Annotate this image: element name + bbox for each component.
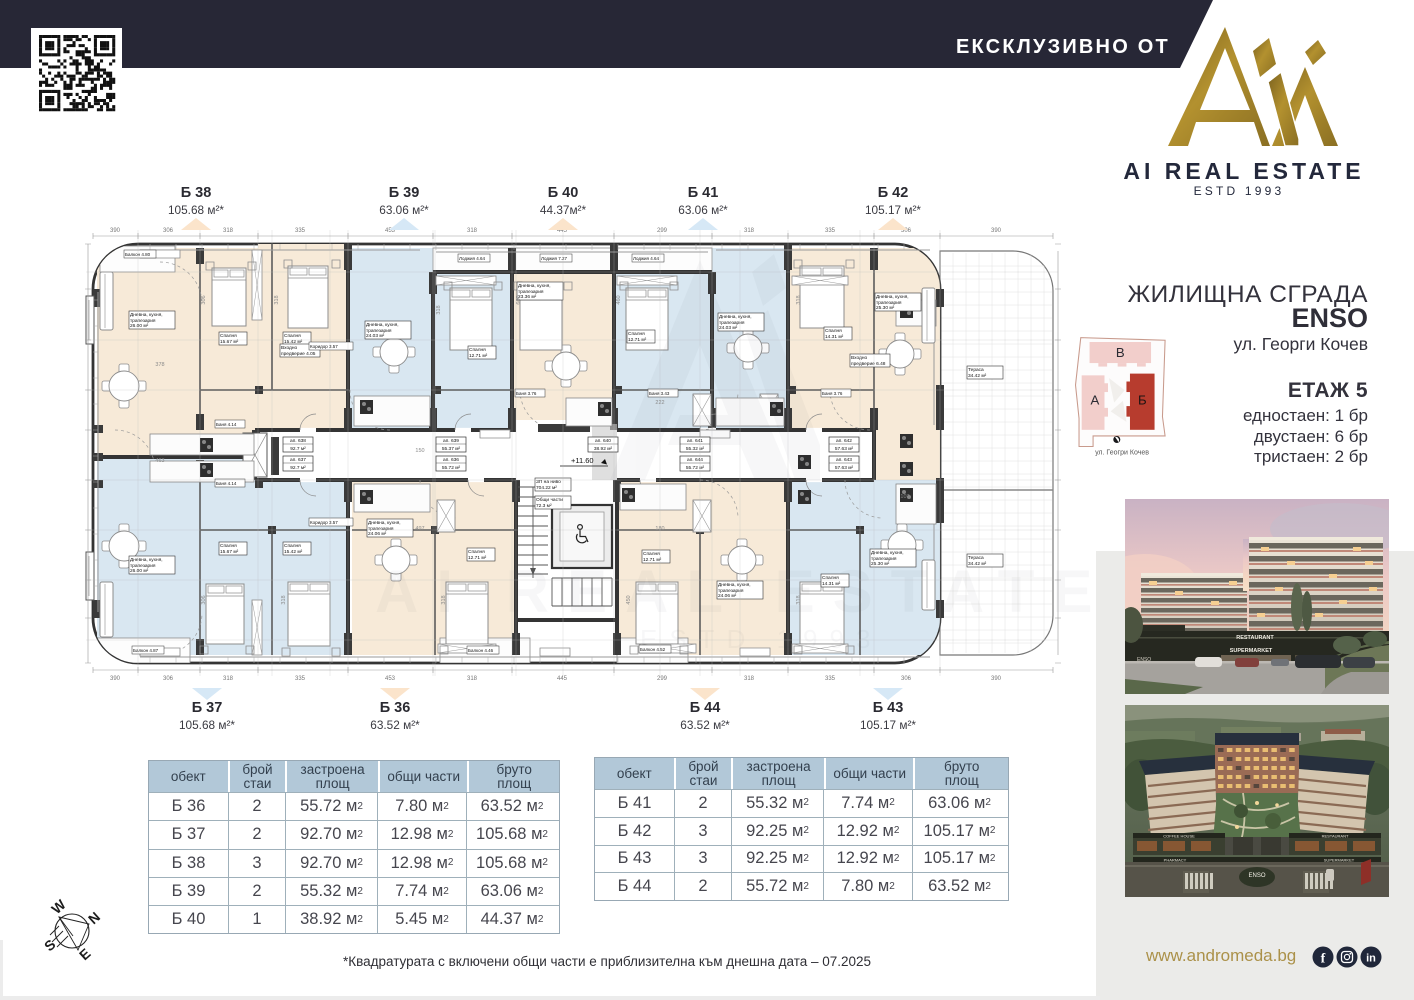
svg-text:Дневна, кухня,: Дневна, кухня, (718, 582, 751, 588)
svg-text:463: 463 (155, 458, 164, 464)
svg-text:S: S (41, 936, 59, 954)
svg-text:Дневна, кухня,: Дневна, кухня, (130, 557, 163, 563)
svg-text:Баня 3.76: Баня 3.76 (516, 391, 537, 396)
svg-text:318: 318 (796, 595, 802, 604)
svg-text:Б 39: Б 39 (389, 185, 420, 201)
svg-text:Коридор 3.57: Коридор 3.57 (310, 520, 338, 525)
svg-text:ап. 642: ап. 642 (836, 438, 852, 444)
svg-text:57.63 м²: 57.63 м² (835, 465, 854, 471)
svg-text:318: 318 (744, 676, 755, 682)
svg-text:55.72 м²: 55.72 м² (442, 465, 461, 471)
svg-text:Баня 3.76: Баня 3.76 (822, 391, 843, 396)
svg-text:RESTAURANT: RESTAURANT (1322, 834, 1349, 839)
svg-text:Балкон 4.87: Балкон 4.87 (133, 648, 159, 653)
svg-text:Спалня: Спалня (825, 328, 842, 334)
svg-text:390: 390 (110, 228, 121, 234)
svg-text:600: 600 (516, 295, 522, 304)
svg-text:25.30 м²: 25.30 м² (876, 305, 895, 311)
svg-text:378: 378 (155, 362, 164, 368)
svg-text:Спалня: Спалня (220, 333, 237, 339)
svg-text:Баня 4.14: Баня 4.14 (216, 422, 237, 427)
svg-text:453: 453 (385, 676, 396, 682)
svg-text:Б 44: Б 44 (690, 700, 721, 716)
svg-text:318: 318 (467, 228, 478, 234)
svg-text:306: 306 (201, 295, 207, 304)
svg-text:Б 41: Б 41 (688, 185, 719, 201)
svg-text:Тераса: Тераса (968, 367, 984, 373)
svg-text:Дневна, кухня,: Дневна, кухня, (876, 294, 909, 300)
svg-text:Б 42: Б 42 (878, 185, 909, 201)
svg-text:318: 318 (223, 676, 234, 682)
svg-text:335: 335 (825, 228, 836, 234)
svg-text:ап. 637: ап. 637 (290, 457, 306, 463)
svg-text:63.06 м²*: 63.06 м²* (678, 203, 728, 217)
svg-text:ап. 639: ап. 639 (443, 438, 459, 444)
svg-text:318: 318 (796, 295, 802, 304)
svg-text:*Квадратурата с включени общи: *Квадратурата с включени общи части е пр… (343, 954, 871, 969)
svg-text:390: 390 (110, 676, 121, 682)
svg-text:105.68 м²*: 105.68 м²* (179, 718, 235, 732)
svg-text:Лоджия 4.64: Лоджия 4.64 (633, 256, 659, 261)
svg-text:E: E (76, 945, 94, 963)
svg-text:Б 36: Б 36 (380, 700, 411, 716)
svg-text:Коридор 3.57: Коридор 3.57 (310, 344, 338, 349)
svg-text:Тераса: Тераса (968, 555, 984, 561)
svg-text:318: 318 (274, 295, 280, 304)
svg-text:Баня 4.14: Баня 4.14 (216, 481, 237, 486)
svg-text:299: 299 (657, 228, 668, 234)
svg-text:24.06 м²: 24.06 м² (368, 531, 387, 537)
svg-text:+11.60: +11.60 (571, 456, 594, 465)
svg-text:Дневна, кухня,: Дневна, кухня, (366, 322, 399, 328)
svg-text:306: 306 (901, 676, 912, 682)
svg-text:12.71 м²: 12.71 м² (469, 353, 488, 359)
svg-text:ап. 644: ап. 644 (687, 457, 703, 463)
svg-text:299: 299 (657, 676, 668, 682)
svg-text:W: W (48, 896, 69, 917)
svg-text:ап. 636: ап. 636 (443, 457, 459, 463)
svg-text:150: 150 (415, 448, 424, 454)
svg-text:26.00 м²: 26.00 м² (130, 323, 149, 329)
svg-text:390: 390 (991, 228, 1002, 234)
svg-text:Б 37: Б 37 (192, 700, 223, 716)
svg-text:445: 445 (557, 676, 568, 682)
svg-text:Дневна, кухня,: Дневна, кухня, (130, 312, 163, 318)
svg-text:Дневна, кухня,: Дневна, кухня, (518, 283, 551, 289)
svg-text:318: 318 (441, 595, 447, 604)
svg-text:Спалня: Спалня (284, 543, 301, 549)
svg-text:24.03 м²: 24.03 м² (719, 325, 738, 331)
svg-text:105.17 м²*: 105.17 м²* (860, 718, 916, 732)
svg-text:335: 335 (825, 676, 836, 682)
svg-text:44.37м²*: 44.37м²* (540, 203, 587, 217)
svg-text:105.68 м²*: 105.68 м²* (168, 203, 224, 217)
svg-text:57.63 м²: 57.63 м² (835, 446, 854, 452)
svg-text:222: 222 (655, 400, 664, 406)
svg-text:SUPERMARKET: SUPERMARKET (1230, 648, 1273, 654)
svg-text:15.42 м²: 15.42 м² (284, 549, 303, 555)
svg-text:Дневна, кухня,: Дневна, кухня, (368, 520, 401, 526)
svg-text:318: 318 (744, 228, 755, 234)
svg-text:55.72 м²: 55.72 м² (686, 465, 705, 471)
svg-text:SUPERMARKET: SUPERMARKET (1324, 858, 1355, 863)
svg-text:PHARMACY: PHARMACY (1164, 858, 1187, 863)
svg-text:497: 497 (415, 526, 424, 532)
svg-text:Входно: Входно (281, 345, 298, 351)
svg-text:Балкон 4.46: Балкон 4.46 (468, 648, 494, 653)
svg-text:14.31 м²: 14.31 м² (822, 581, 841, 587)
svg-text:306: 306 (163, 228, 174, 234)
svg-text:15.67 м²: 15.67 м² (220, 549, 239, 555)
svg-text:92.7 м²: 92.7 м² (290, 465, 306, 471)
svg-text:Спалня: Спалня (628, 331, 645, 337)
svg-text:335: 335 (295, 228, 306, 234)
svg-text:предверие 4.05: предверие 4.05 (281, 351, 316, 357)
svg-text:460: 460 (616, 295, 622, 304)
svg-text:Баня 3.43: Баня 3.43 (649, 391, 670, 396)
svg-text:Балкон 4.52: Балкон 4.52 (640, 647, 666, 652)
svg-text:ESTD 1993: ESTD 1993 (640, 624, 882, 654)
svg-text:Дневна, кухня,: Дневна, кухня, (871, 550, 904, 556)
svg-text:24.06 м²: 24.06 м² (718, 593, 737, 599)
svg-text:14.31 м²: 14.31 м² (825, 334, 844, 340)
svg-text:ап. 641: ап. 641 (687, 438, 703, 444)
svg-text:Спалня: Спалня (468, 549, 485, 555)
svg-text:318: 318 (281, 595, 287, 604)
svg-text:63.06 м²*: 63.06 м²* (379, 203, 429, 217)
svg-text:63.52 м²*: 63.52 м²* (370, 718, 420, 732)
svg-text:Лоджия 4.64: Лоджия 4.64 (459, 256, 485, 261)
svg-text:предверие 6.48: предверие 6.48 (851, 361, 886, 367)
svg-text:Общи части: Общи части (536, 497, 563, 503)
svg-text:Лоджия 7.27: Лоджия 7.27 (541, 256, 567, 261)
svg-text:306: 306 (201, 595, 207, 604)
svg-text:ап. 643: ап. 643 (836, 457, 852, 463)
svg-text:COFFEE HOUSE: COFFEE HOUSE (1163, 834, 1195, 839)
svg-text:55.37 м²: 55.37 м² (442, 446, 461, 452)
svg-text:450: 450 (626, 595, 632, 604)
svg-text:Б 43: Б 43 (873, 700, 904, 716)
svg-text:180: 180 (655, 526, 664, 532)
svg-text:38.92 м²: 38.92 м² (594, 446, 613, 452)
svg-text:107: 107 (900, 494, 909, 500)
svg-text:Спалня: Спалня (643, 551, 660, 557)
svg-text:ап. 638: ап. 638 (290, 438, 306, 444)
svg-text:318: 318 (436, 305, 442, 314)
svg-text:318: 318 (467, 676, 478, 682)
svg-text:318: 318 (223, 228, 234, 234)
svg-text:55.32 м²: 55.32 м² (686, 446, 705, 452)
svg-text:72.3 м²: 72.3 м² (536, 503, 552, 509)
svg-text:Входно: Входно (851, 355, 868, 361)
svg-text:in: in (1366, 953, 1376, 965)
svg-text:34.42 м²: 34.42 м² (968, 561, 987, 567)
svg-text:ENSO: ENSO (1248, 873, 1265, 879)
svg-text:335: 335 (295, 676, 306, 682)
svg-text:12.71 м²: 12.71 м² (643, 557, 662, 563)
svg-text:390: 390 (991, 676, 1002, 682)
svg-text:306: 306 (163, 676, 174, 682)
svg-text:24.03 м²: 24.03 м² (366, 333, 385, 339)
svg-text:Спалня: Спалня (469, 347, 486, 353)
svg-text:12.71 м²: 12.71 м² (468, 555, 487, 561)
svg-text:f: f (1321, 952, 1326, 967)
svg-text:704.22 м²: 704.22 м² (536, 485, 557, 491)
svg-text:Спалня: Спалня (284, 333, 301, 339)
svg-text:Дневна, кухня,: Дневна, кухня, (719, 314, 752, 320)
svg-text:ап. 640: ап. 640 (595, 438, 611, 444)
svg-text:26.00 м²: 26.00 м² (130, 568, 149, 574)
svg-text:63.52 м²*: 63.52 м²* (680, 718, 730, 732)
svg-text:105.17 м²*: 105.17 м²* (865, 203, 921, 217)
svg-text:92.7 м²: 92.7 м² (290, 446, 306, 452)
svg-text:Спалня: Спалня (220, 543, 237, 549)
svg-text:34.42 м²: 34.42 м² (968, 373, 987, 379)
svg-text:RESTAURANT: RESTAURANT (1236, 635, 1274, 641)
svg-text:Б 38: Б 38 (181, 185, 212, 201)
svg-text:Б 40: Б 40 (548, 185, 579, 201)
